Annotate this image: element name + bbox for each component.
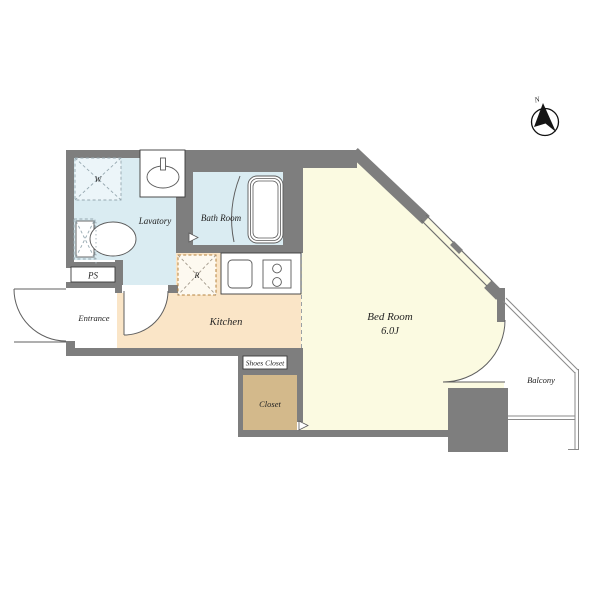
bedroom-label: Bed Room	[367, 311, 413, 323]
wash-basin	[140, 150, 185, 197]
closet-label: Closet	[259, 399, 281, 409]
balcony-railing	[503, 298, 579, 450]
kitchen-sink	[228, 260, 252, 288]
entrance-label: Entrance	[77, 313, 109, 323]
floorplan-canvas: Lavatory Bath Room Kitchen Bed Room 6.0J…	[0, 0, 600, 600]
stove-burner	[273, 264, 282, 273]
lavatory-label: Lavatory	[138, 216, 172, 226]
refrigerator-label: R	[194, 271, 200, 280]
kitchen-counter	[221, 253, 301, 294]
ps-label: PS	[87, 271, 98, 281]
entrance-door	[14, 289, 66, 342]
floorplan-page: Lavatory Bath Room Kitchen Bed Room 6.0J…	[0, 0, 600, 600]
balcony-label: Balcony	[527, 375, 555, 385]
stove-burner	[273, 278, 282, 287]
bathroom-label: Bath Room	[201, 213, 242, 223]
compass: N	[532, 94, 559, 135]
shoes-closet-label: Shoes Closet	[246, 359, 285, 368]
kitchen-label: Kitchen	[209, 317, 243, 328]
bedroom-area-label: 6.0J	[381, 326, 400, 337]
compass-north-label: N	[533, 94, 542, 104]
bathtub	[248, 176, 283, 243]
